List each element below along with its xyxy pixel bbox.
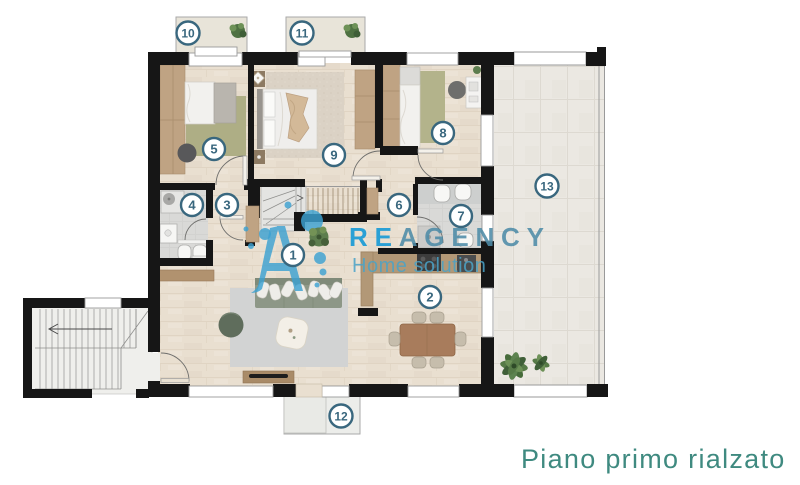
svg-text:9: 9 [330, 148, 337, 163]
svg-text:10: 10 [181, 27, 195, 41]
svg-text:1: 1 [289, 248, 296, 263]
svg-text:6: 6 [395, 198, 402, 213]
svg-text:4: 4 [188, 198, 196, 213]
svg-text:11: 11 [296, 27, 309, 41]
svg-text:12: 12 [334, 410, 348, 424]
svg-text:8: 8 [439, 126, 446, 141]
svg-text:REAGENCY: REAGENCY [349, 222, 551, 252]
svg-text:Home solution: Home solution [352, 255, 486, 277]
svg-text:2: 2 [426, 290, 433, 305]
svg-text:5: 5 [210, 142, 217, 157]
svg-text:3: 3 [223, 198, 230, 213]
svg-text:13: 13 [540, 180, 554, 194]
svg-text:7: 7 [457, 209, 464, 224]
svg-text:Piano primo rialzato: Piano primo rialzato [521, 444, 786, 474]
